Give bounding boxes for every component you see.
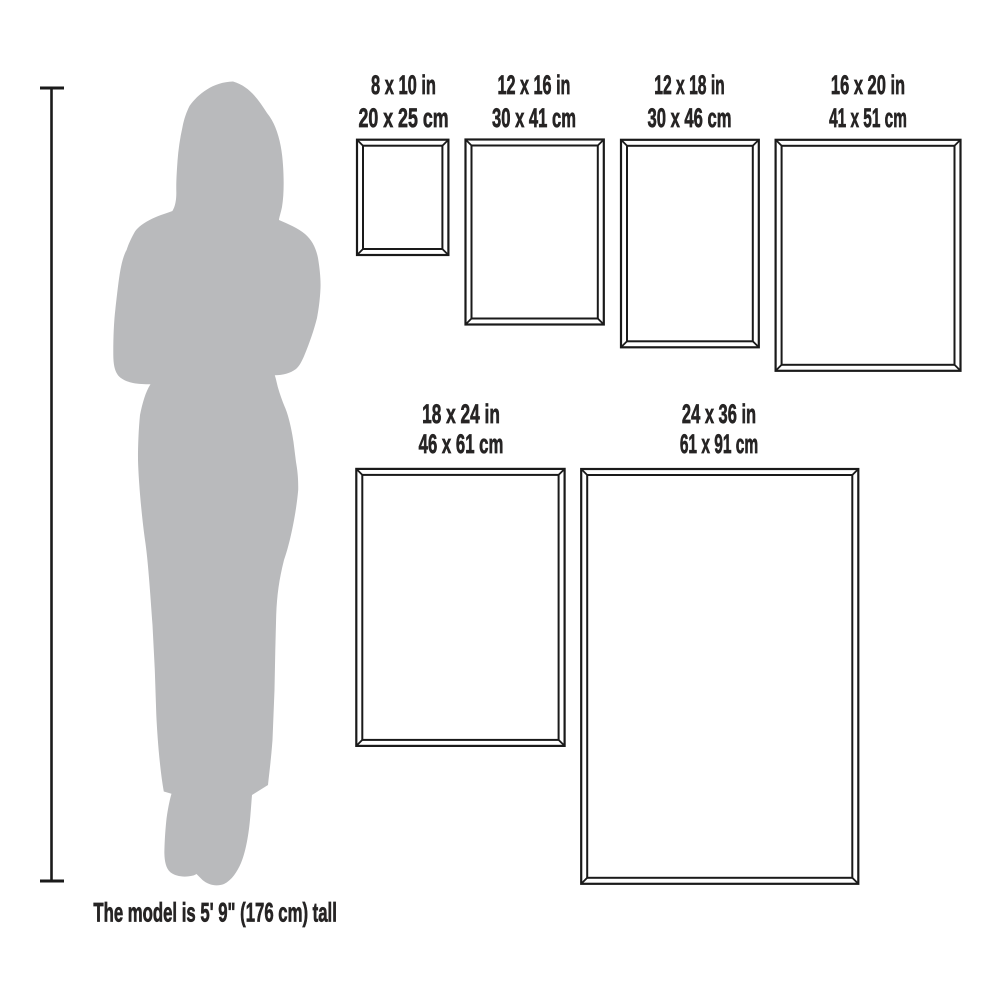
svg-text:61 x 91 cm: 61 x 91 cm: [680, 428, 758, 459]
svg-text:18 x 24 in: 18 x 24 in: [422, 398, 500, 429]
svg-text:41 x 51 cm: 41 x 51 cm: [829, 102, 907, 133]
svg-text:8 x 10 in: 8 x 10 in: [371, 70, 436, 100]
svg-text:20 x 25 cm: 20 x 25 cm: [358, 102, 448, 133]
svg-text:12 x 18 in: 12 x 18 in: [654, 70, 724, 101]
svg-text:12 x 16 in: 12 x 16 in: [498, 70, 571, 100]
svg-text:46 x 61 cm: 46 x 61 cm: [419, 429, 504, 459]
svg-text:The model is 5' 9" (176 cm) ta: The model is 5' 9" (176 cm) tall: [93, 897, 336, 927]
svg-text:24 x 36 in: 24 x 36 in: [682, 399, 756, 429]
svg-text:16 x 20 in: 16 x 20 in: [831, 70, 905, 100]
svg-text:30 x 41 cm: 30 x 41 cm: [492, 103, 576, 133]
svg-text:30 x 46 cm: 30 x 46 cm: [648, 103, 732, 133]
